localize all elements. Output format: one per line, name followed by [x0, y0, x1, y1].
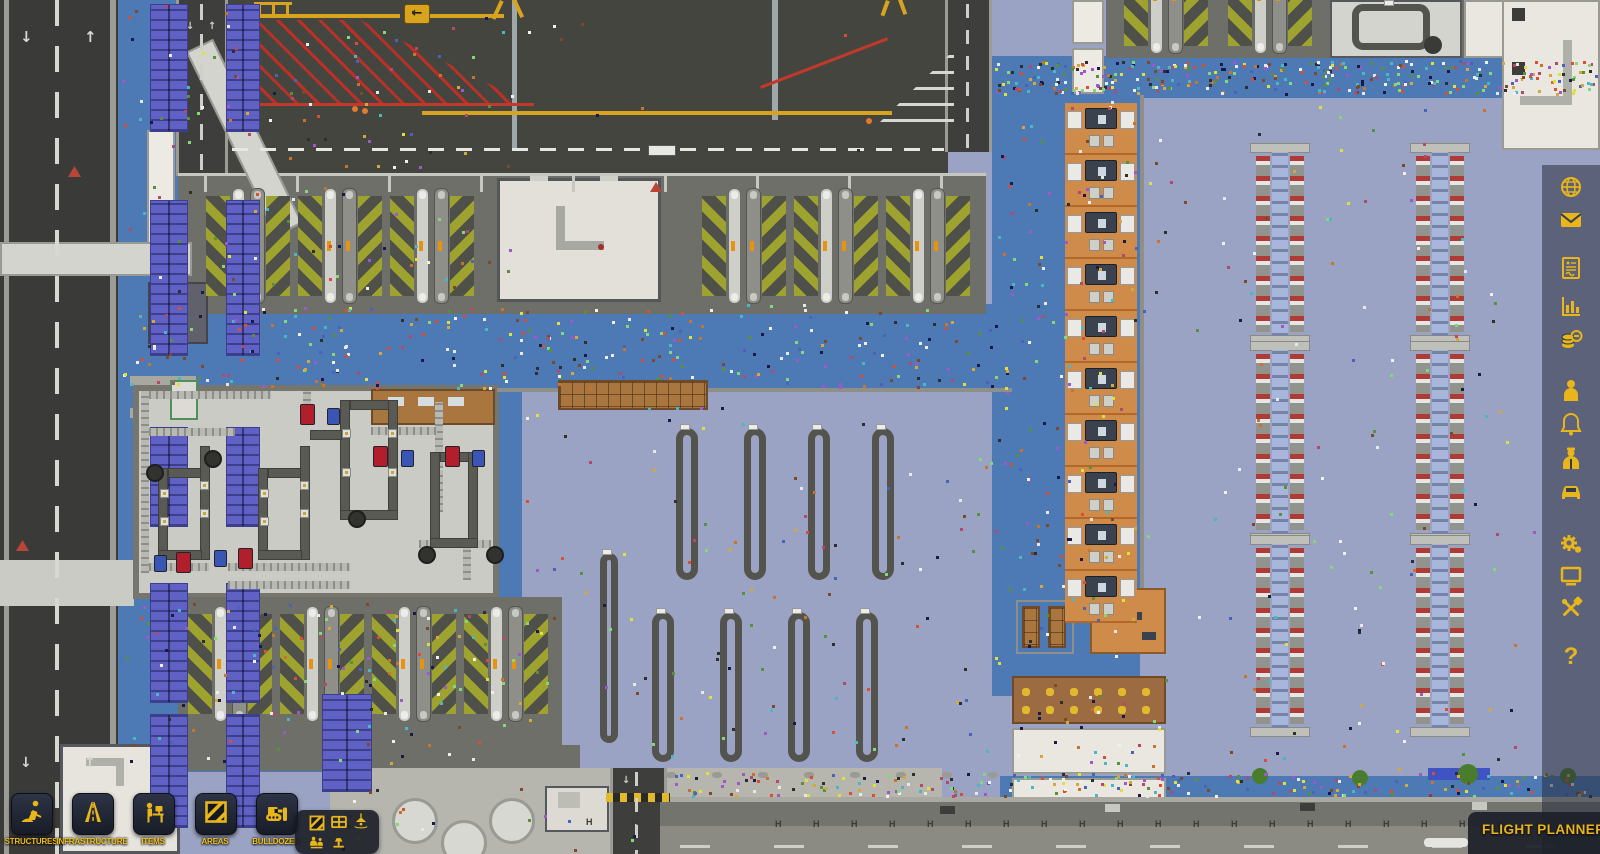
- belt-cap: [934, 191, 941, 199]
- fence-post: H: [1193, 820, 1200, 829]
- belt-cap: [823, 293, 830, 301]
- belt-cap: [823, 191, 830, 199]
- chevron-pad: [762, 196, 786, 296]
- diverter-dot: [263, 520, 266, 523]
- gate-stand[interactable]: [792, 188, 880, 304]
- map-circle: [598, 244, 604, 250]
- diverter-dot: [203, 484, 206, 487]
- gate-stand[interactable]: [1122, 0, 1210, 54]
- gate-light: [934, 241, 938, 251]
- belt-cap: [915, 293, 922, 301]
- right-sidebar: ?: [1542, 165, 1600, 854]
- gate-light: [1172, 0, 1176, 1]
- belt-diverter: [300, 481, 309, 490]
- floor: [1300, 803, 1315, 811]
- dozer-icon: [264, 799, 290, 830]
- game-viewport: ←HHHHHHHHHHHHHHHHHHHHHHH↓↑↓↑↓↑↓ ? STRUCT…: [0, 0, 1600, 854]
- belt-junction: [348, 510, 366, 528]
- diverter-dot: [263, 492, 266, 495]
- belt-junction: [204, 450, 222, 468]
- floor: [556, 241, 604, 250]
- road-marking: [966, 4, 969, 148]
- diverter-dot: [391, 432, 394, 435]
- floor: [0, 560, 134, 606]
- stats-icon[interactable]: [1554, 289, 1588, 323]
- map-circle: [1424, 36, 1442, 54]
- diverter-dot: [345, 432, 348, 435]
- chevron-pad: [1228, 0, 1252, 46]
- gate-light: [1153, 0, 1157, 1]
- floor: [1072, 0, 1104, 44]
- belt-cap: [731, 191, 738, 199]
- floor: [664, 176, 667, 192]
- baggage-scanner[interactable]: [176, 552, 191, 573]
- belt-cap: [934, 293, 941, 301]
- flight-planner-label[interactable]: FLIGHT PLANNER: [1482, 822, 1600, 837]
- conveyor-belt[interactable]: [430, 538, 478, 548]
- lane-arrow: ↑: [84, 30, 97, 45]
- belt-diverter: [160, 517, 169, 526]
- minimized-bar[interactable]: [1424, 838, 1468, 847]
- gate-light: [750, 241, 754, 251]
- areas-button[interactable]: [195, 793, 237, 835]
- gate-light: [842, 241, 846, 251]
- belt-cap: [915, 191, 922, 199]
- settings-icon[interactable]: [1554, 526, 1588, 560]
- crowd-region: [336, 772, 636, 852]
- belt-cap: [1276, 43, 1283, 51]
- gate-stand[interactable]: [884, 188, 972, 304]
- belt-diverter: [388, 429, 397, 438]
- seating-bench[interactable]: [226, 427, 260, 527]
- gate-belt: [1272, 0, 1287, 54]
- chevron-pad: [1288, 0, 1312, 46]
- fence-post: H: [965, 820, 972, 829]
- conveyor-belt[interactable]: [149, 391, 271, 399]
- chevron-pad: [702, 196, 726, 296]
- contract-icon[interactable]: [1554, 251, 1588, 285]
- fence-post: H: [1117, 820, 1124, 829]
- gate-belt: [1168, 0, 1183, 54]
- baggage-loader[interactable]: [401, 450, 414, 467]
- belt-diverter: [300, 509, 309, 518]
- belt-diverter: [342, 468, 351, 477]
- desk-lamp-icon[interactable]: [330, 834, 348, 852]
- chevron-pad: [854, 196, 878, 296]
- gate-stand[interactable]: [700, 188, 788, 304]
- belt-cap: [842, 293, 849, 301]
- chevron-pad: [886, 196, 910, 296]
- belt-cap: [1153, 43, 1160, 51]
- crowd-region: [1014, 680, 1162, 768]
- fence-post: H: [1345, 820, 1352, 829]
- gate-light: [731, 241, 735, 251]
- belt-cap: [731, 293, 738, 301]
- worker-icon: [19, 799, 45, 830]
- baggage-loader[interactable]: [214, 550, 227, 567]
- fence-post: H: [1155, 820, 1162, 829]
- crowd-region: [994, 100, 1138, 660]
- desk-icon: [141, 799, 167, 830]
- floor: [948, 0, 992, 152]
- floor: [4, 0, 9, 854]
- diverter-dot: [345, 471, 348, 474]
- monitor-icon[interactable]: [1554, 559, 1588, 593]
- crowd-region: [994, 60, 1598, 96]
- baggage-scanner[interactable]: [300, 404, 315, 425]
- conveyor-belt[interactable]: [258, 550, 302, 560]
- belt-diverter: [260, 489, 269, 498]
- conveyor-belt[interactable]: [388, 400, 398, 520]
- baggage-claim-belt[interactable]: [1352, 4, 1430, 50]
- ceiling-light-icon[interactable]: [352, 812, 370, 830]
- belt-diverter: [200, 509, 209, 518]
- baggage-loader[interactable]: [154, 555, 167, 572]
- belt-junction: [146, 464, 164, 482]
- crowd-region: [500, 398, 1006, 758]
- floor: [989, 0, 992, 152]
- gate-light: [1276, 0, 1280, 1]
- conveyor-belt[interactable]: [300, 446, 310, 560]
- fence-post: H: [1383, 820, 1390, 829]
- diverter-dot: [203, 512, 206, 515]
- baggage-scanner[interactable]: [238, 548, 253, 569]
- zones-icon: [203, 799, 229, 830]
- crowd-region: [232, 4, 942, 170]
- belt-junction: [418, 546, 436, 564]
- floor: [1512, 8, 1525, 21]
- conveyor-belt[interactable]: [149, 428, 235, 436]
- conveyor-belt[interactable]: [340, 400, 350, 520]
- floor: [0, 0, 118, 854]
- fence-post: H: [927, 820, 934, 829]
- fence-post: H: [889, 820, 896, 829]
- gate-belt: [1254, 0, 1267, 54]
- fence-post: H: [1041, 820, 1048, 829]
- globe-icon[interactable]: [1554, 170, 1588, 204]
- floor: [600, 176, 618, 181]
- floor: [1105, 804, 1120, 812]
- gate-light: [915, 241, 919, 251]
- crowd-region: [664, 772, 1594, 798]
- walls-grid-icon[interactable]: [330, 814, 348, 832]
- fence-post: H: [1459, 820, 1466, 829]
- belt-diverter: [388, 468, 397, 477]
- bulldozer-button[interactable]: [256, 793, 298, 835]
- diverter-dot: [303, 484, 306, 487]
- lane-arrow: ↓: [20, 30, 33, 45]
- fence-post: H: [1079, 820, 1086, 829]
- conveyor-belt[interactable]: [258, 468, 268, 560]
- belt-cap: [1172, 43, 1179, 51]
- fence-post: H: [775, 820, 782, 829]
- road-marking: [55, 0, 59, 854]
- mail-icon[interactable]: [1554, 203, 1588, 237]
- baggage-scanner[interactable]: [445, 446, 460, 467]
- floor: [1472, 802, 1487, 810]
- finance-icon[interactable]: [1554, 323, 1588, 357]
- baggage-scanner[interactable]: [373, 446, 388, 467]
- belt-cap: [1257, 43, 1264, 51]
- belt-diverter: [200, 481, 209, 490]
- fence-post: H: [1421, 820, 1428, 829]
- road-icon: [80, 799, 106, 830]
- chevron-pad: [1184, 0, 1208, 46]
- items-button[interactable]: [133, 793, 175, 835]
- gate-light: [1257, 0, 1261, 1]
- gate-light: [823, 241, 827, 251]
- belt-cap: [750, 191, 757, 199]
- crowd-region: [1142, 100, 1538, 790]
- person-icon[interactable]: [1554, 373, 1588, 407]
- lane-arrow: ↑: [84, 756, 96, 770]
- fence-post: H: [1269, 820, 1276, 829]
- fence-post: H: [1307, 820, 1314, 829]
- belt-diverter: [342, 429, 351, 438]
- diverter-dot: [163, 520, 166, 523]
- diverter-dot: [163, 492, 166, 495]
- chevron-pad: [1124, 0, 1148, 46]
- floor: [530, 176, 548, 181]
- floor: [940, 806, 955, 814]
- tools-icon[interactable]: [1554, 591, 1588, 625]
- floor: [178, 173, 986, 176]
- diverter-dot: [391, 471, 394, 474]
- floor: [418, 397, 434, 406]
- bell-icon[interactable]: [1554, 407, 1588, 441]
- tool-subpanel: [295, 810, 379, 854]
- conveyor-belt[interactable]: [158, 468, 168, 560]
- help-icon[interactable]: ?: [1554, 640, 1588, 674]
- baggage-loader[interactable]: [472, 450, 485, 467]
- loop-cap: [1384, 0, 1394, 6]
- crowd-region: [122, 304, 1008, 390]
- fence-post: H: [1003, 820, 1010, 829]
- chevron-pad: [946, 196, 970, 296]
- fence-post: H: [851, 820, 858, 829]
- gate-stand[interactable]: [1226, 0, 1314, 54]
- staff-pair-icon[interactable]: [308, 834, 326, 852]
- floor: [116, 758, 124, 786]
- chevron-pad: [794, 196, 818, 296]
- conveyor-belt[interactable]: [141, 391, 149, 573]
- infrastructure-button[interactable]: [72, 793, 114, 835]
- floor: [110, 0, 116, 854]
- flight-planner-bar[interactable]: FLIGHT PLANNER: [1468, 812, 1600, 854]
- staff-icon[interactable]: [1554, 441, 1588, 475]
- diverter-dot: [303, 512, 306, 515]
- baggage-loader[interactable]: [327, 408, 340, 425]
- belt-cap: [750, 293, 757, 301]
- fence-post: H: [813, 820, 820, 829]
- structures-button[interactable]: [11, 793, 53, 835]
- belt-diverter: [260, 517, 269, 526]
- crowd-region: [124, 602, 516, 766]
- zones-small-icon[interactable]: [308, 814, 326, 832]
- floor: [497, 178, 661, 302]
- conveyor-belt[interactable]: [228, 581, 350, 589]
- vehicle-icon[interactable]: [1554, 474, 1588, 508]
- belt-diverter: [160, 489, 169, 498]
- fence-post: H: [1231, 820, 1238, 829]
- gate-belt: [1150, 0, 1163, 54]
- lane-arrow: ↓: [20, 756, 32, 770]
- conveyor-belt[interactable]: [430, 452, 440, 548]
- conveyor-belt[interactable]: [310, 430, 342, 440]
- floor: [572, 176, 575, 192]
- floor: [448, 397, 464, 406]
- belt-cap: [842, 191, 849, 199]
- crowd-region: [120, 182, 516, 300]
- conveyor-belt[interactable]: [371, 427, 437, 435]
